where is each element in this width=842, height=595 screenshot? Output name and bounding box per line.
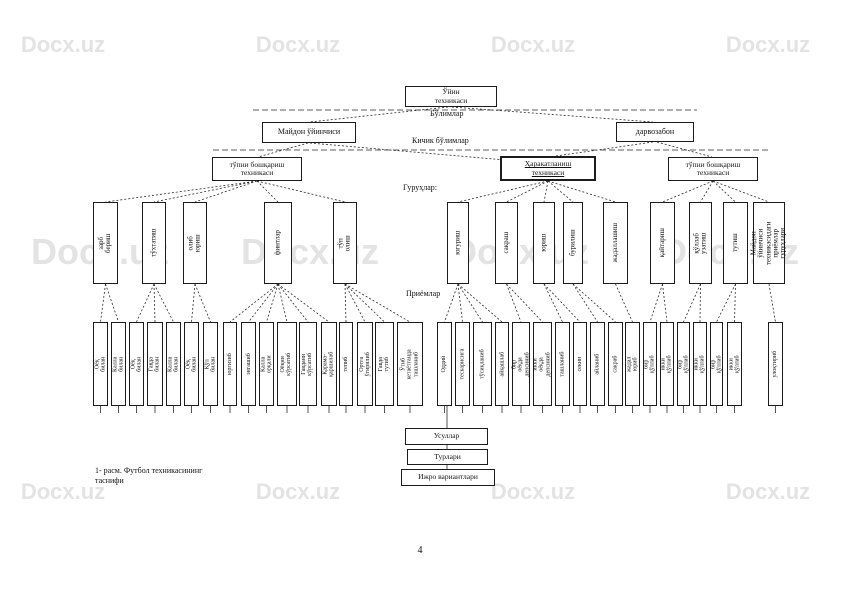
technique-box-label: Оёқ билан xyxy=(130,356,143,371)
technique-box-label: секин xyxy=(577,357,583,372)
group-box-label: финтлар xyxy=(274,230,281,256)
technique-box: Оёқни кўрсатиб xyxy=(277,322,297,406)
branch-field-player-box: Майдон ўйинчиси xyxy=(262,122,356,143)
technique-box: Оёқ билан xyxy=(93,322,108,406)
technique-box: Қарама-қаршилаб xyxy=(321,322,337,406)
technique-box-label: икки оёқда депсиниб xyxy=(533,352,552,376)
technique-box: икки қўллаб xyxy=(693,322,707,406)
technique-box-label: бир қўллаб xyxy=(644,355,657,373)
technique-box-label: юргизиб xyxy=(227,353,233,375)
technique-box: энгашиб xyxy=(241,322,256,406)
group-box: тўхтатиш xyxy=(142,202,166,284)
section-ball-control-right-box: тўпни бошқариш техникаси xyxy=(668,157,758,181)
technique-box-label: Калла орқали xyxy=(260,355,273,373)
technique-box: Калла билан xyxy=(166,322,181,406)
group-box-label: тўхтатиш xyxy=(150,229,157,257)
technique-box-label: икки қўллаб xyxy=(694,355,707,373)
group-box-label: олиб юриш xyxy=(188,232,203,254)
technique-box-label: Оёқни кўрсатиб xyxy=(281,352,294,375)
technique-box-label: Гавда тутиб xyxy=(378,356,391,373)
chain-methods-label: Усуллар xyxy=(434,432,460,440)
group-box-label: жадаллашиш xyxy=(612,223,619,262)
technique-box: Гавда тутиб xyxy=(375,322,394,406)
technique-box: Оддий xyxy=(437,322,452,406)
group-box-label: юриш xyxy=(540,233,547,253)
technique-box: бир қўллаб xyxy=(643,322,657,406)
group-box: олиб юриш xyxy=(183,202,207,284)
technique-box: Оёқ билан xyxy=(129,322,144,406)
chain-types-box: Турлари xyxy=(407,449,488,465)
technique-box-label: бир оёқда депсиниб xyxy=(512,352,531,376)
technique-box: Гавда билан xyxy=(147,322,163,406)
technique-box-label: тўсиқланиб xyxy=(479,349,485,379)
chain-types-label: Турлари xyxy=(434,453,460,461)
level-label-groups: Гуруҳлар: xyxy=(403,183,437,192)
technique-box-label: Калла билан xyxy=(112,356,125,371)
branch-goalkeeper-box: дарвозабон xyxy=(616,122,694,142)
group-box: югуриш xyxy=(447,202,469,284)
group-box: қўллаб узатиш xyxy=(689,202,712,284)
technique-box-label: улоқтириб xyxy=(772,351,778,378)
chain-variants-box: Ижро вариантлари xyxy=(401,469,495,486)
root-label: Ўйин техникаси xyxy=(435,88,468,104)
technique-box-label: Оёқ билан xyxy=(185,356,198,371)
technique-box: ташланиб xyxy=(555,322,570,406)
technique-box: тепиб xyxy=(339,322,353,406)
technique-box-label: Қўл билан xyxy=(204,356,217,371)
group-box-label: сакраш xyxy=(503,232,510,254)
section-ball-control-left-box: тўпни бошқариш техникаси xyxy=(212,157,302,181)
technique-box: Ортга ўгирилиб xyxy=(357,322,373,406)
technique-box-label: Гавдани кўрсатиб xyxy=(302,352,315,375)
branch-field-player-label: Майдон ўйинчиси xyxy=(278,128,340,137)
document-page: Docx.uzDocx.uzDocx.uzDocx.uzDocx.uzDocx.… xyxy=(0,0,842,595)
technique-box: икки қўллаб xyxy=(660,322,674,406)
technique-box-label: Оёқ билан xyxy=(94,356,107,371)
group-box-label: тутиш xyxy=(732,232,739,255)
technique-box: бир қўллаб xyxy=(677,322,690,406)
technique-box-label: сакраб xyxy=(612,355,618,372)
level-label-priyoms: Приёмлар xyxy=(406,289,440,298)
group-box: жадаллашиш xyxy=(603,202,628,284)
technique-box-label: тескарисига xyxy=(459,349,465,380)
technique-box: Калла орқали xyxy=(259,322,274,406)
technique-box-label: Гавда билан xyxy=(149,356,162,371)
technique-box: икки қўллаб xyxy=(727,322,742,406)
technique-box: секин xyxy=(573,322,587,406)
section-ball-control-right-label: тўпни бошқариш техникаси xyxy=(686,161,741,177)
section-movement-label: Ҳаракатланиш техникаси xyxy=(525,160,571,176)
technique-box: айқашлаб xyxy=(495,322,509,406)
technique-box-label: Ўтиб кетаётганда ташланиб xyxy=(401,349,420,379)
figure-caption: 1- расм. Футбол техникасининг таснифи xyxy=(95,466,255,486)
branch-goalkeeper-label: дарвозабон xyxy=(636,128,674,137)
technique-box-label: икки қўллаб xyxy=(728,355,741,373)
group-box: тутиш xyxy=(723,202,748,284)
group-box-label: қўллаб узатиш xyxy=(693,232,708,253)
technique-box: тўсиқланиб xyxy=(473,322,492,406)
technique-box-label: Калла билан xyxy=(167,356,180,371)
technique-box-label: Оддий xyxy=(441,356,447,373)
technique-box-label: айқашлаб xyxy=(499,352,505,377)
level-label-sections: Бўлимлар xyxy=(430,109,463,118)
technique-box: бир оёқда депсиниб xyxy=(512,322,530,406)
level-label-subsections: Кичик бўлимлар xyxy=(412,136,469,145)
technique-box: юргизиб xyxy=(223,322,237,406)
technique-box-label: тепиб xyxy=(343,357,349,372)
technique-box: икки оёқда депсиниб xyxy=(533,322,552,406)
group-box: юриш xyxy=(533,202,555,284)
technique-box-label: Қарама-қаршилаб xyxy=(323,351,336,376)
group-box: бурилиш xyxy=(563,202,583,284)
technique-box-label: жадал юриб xyxy=(626,356,639,372)
section-ball-control-left-label: тўпни бошқариш техникаси xyxy=(230,161,285,177)
technique-box: айланиб xyxy=(590,322,605,406)
root-box: Ўйин техникаси xyxy=(405,86,497,107)
technique-box: Калла билан xyxy=(111,322,126,406)
technique-box-label: Ортга ўгирилиб xyxy=(359,352,372,376)
technique-box: бир қўллаб xyxy=(710,322,723,406)
group-box: тўп олиш xyxy=(333,202,357,284)
group-box: зарб бериш xyxy=(93,202,118,284)
group-box-label: бурилиш xyxy=(569,230,576,257)
chain-variants-label: Ижро вариантлари xyxy=(418,473,478,481)
page-number: 4 xyxy=(410,545,430,556)
technique-box-label: айланиб xyxy=(594,353,600,374)
technique-box: тескарисига xyxy=(455,322,470,406)
group-box-label: Майдон ўйинчиси техникасидаги приёмлар г… xyxy=(751,221,788,265)
group-box-label: қайтариш xyxy=(659,228,666,257)
group-box-label: тўп олиш xyxy=(338,232,353,254)
technique-box-label: бир қўллаб xyxy=(710,355,723,373)
technique-box: жадал юриб xyxy=(625,322,640,406)
technique-box-label: энгашиб xyxy=(245,353,251,375)
group-box-label: зарб бериш xyxy=(98,232,113,255)
technique-box-label: икки қўллаб xyxy=(661,355,674,373)
group-box: финтлар xyxy=(264,202,292,284)
group-box: Майдон ўйинчиси техникасидаги приёмлар г… xyxy=(753,202,785,284)
chain-methods-box: Усуллар xyxy=(405,428,488,445)
technique-box: Оёқ билан xyxy=(184,322,199,406)
technique-box: сакраб xyxy=(608,322,623,406)
technique-box-label: ташланиб xyxy=(559,351,565,376)
technique-box: улоқтириб xyxy=(768,322,783,406)
group-box-label: югуриш xyxy=(454,231,461,255)
technique-box-label: бир қўллаб xyxy=(677,355,690,373)
technique-box: Қўл билан xyxy=(203,322,218,406)
section-movement-box: Ҳаракатланиш техникаси xyxy=(500,156,596,181)
technique-box: Гавдани кўрсатиб xyxy=(299,322,317,406)
group-box: қайтариш xyxy=(650,202,675,284)
technique-box: Ўтиб кетаётганда ташланиб xyxy=(397,322,423,406)
group-box: сакраш xyxy=(495,202,518,284)
